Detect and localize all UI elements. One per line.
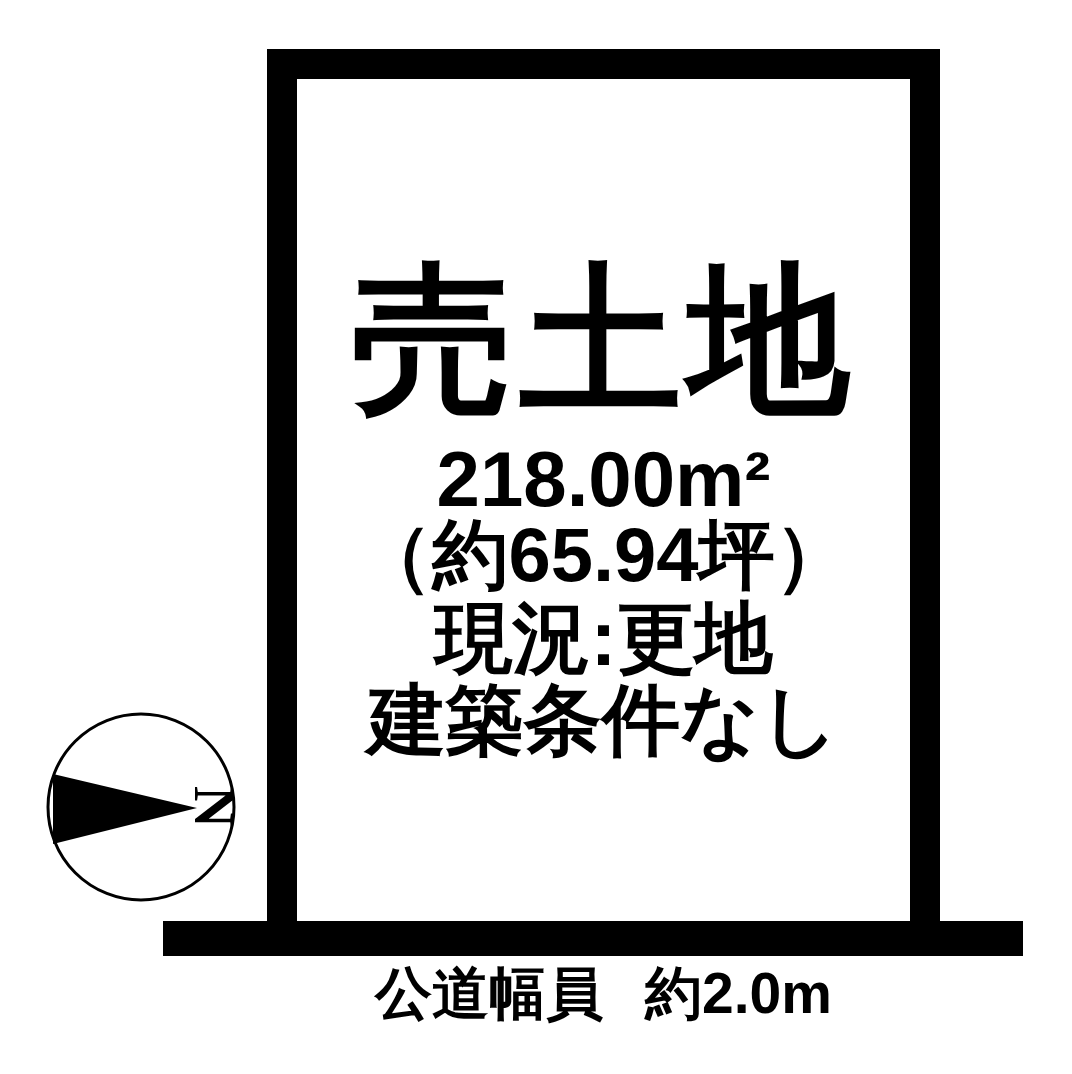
north-label: N <box>182 786 239 828</box>
plot-area-tsubo: （約65.94坪） <box>267 517 940 593</box>
road-width-value: 約2.0m <box>645 965 832 1022</box>
plot-current-status: 現況:更地 <box>267 599 940 677</box>
plot-area-sqm: 218.00m² <box>267 440 940 518</box>
compass-icon: N <box>44 710 238 904</box>
land-sale-diagram: N 売土地 218.00m² （約65.94坪） 現況:更地 建築条件なし 公道… <box>0 0 1072 1074</box>
road-caption: 公道幅員 約2.0m <box>267 965 940 1022</box>
plot-title: 売土地 <box>267 255 940 425</box>
road-bar <box>163 921 1023 956</box>
plot-building-conditions: 建築条件なし <box>267 681 940 759</box>
road-width-label: 公道幅員 <box>375 965 603 1022</box>
